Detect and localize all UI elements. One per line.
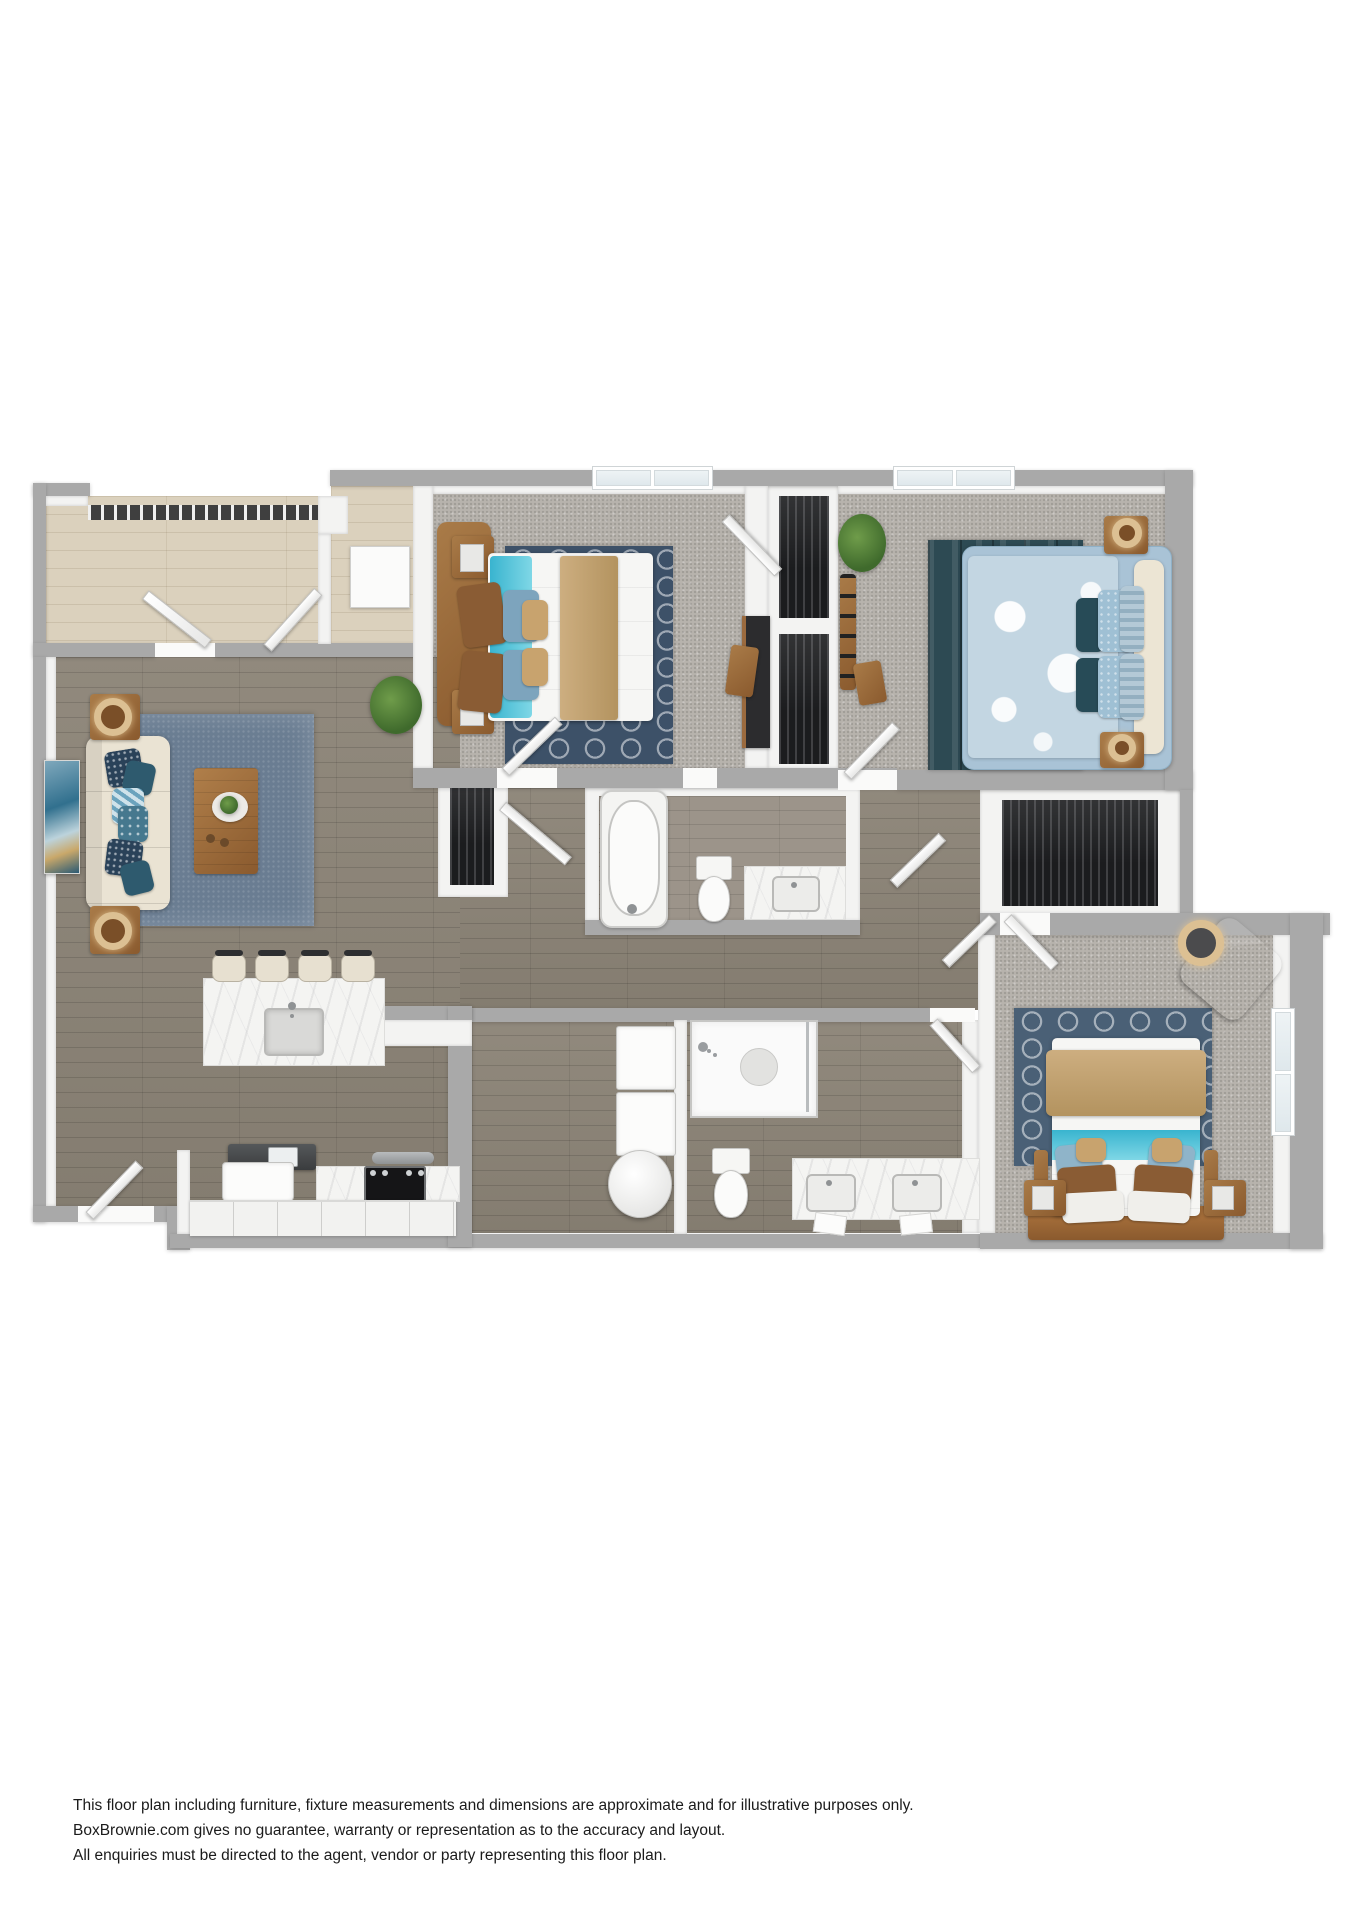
washer	[616, 1026, 676, 1090]
window-pane	[654, 470, 709, 486]
window-pane	[1275, 1012, 1291, 1071]
linen-closet-interior	[450, 783, 494, 885]
stove-knobs	[370, 1170, 376, 1176]
bedroom3-pillow-white	[1061, 1190, 1124, 1223]
dishwasher	[222, 1162, 294, 1204]
disclaimer-line-2: BoxBrownie.com gives no guarantee, warra…	[73, 1818, 1213, 1843]
bathroom2-faucet-left	[826, 1180, 832, 1186]
toilet1-bowl	[698, 876, 730, 922]
kitchen-stub-wall	[177, 1150, 190, 1234]
window-pane	[596, 470, 651, 486]
toilet2-bowl	[714, 1170, 748, 1218]
nightstand-decor	[1032, 1186, 1054, 1210]
bedroom2-bottom-wall	[897, 770, 1193, 790]
nook-left-wall	[318, 534, 331, 644]
top-exterior-wall	[330, 470, 1193, 486]
window-pane	[1275, 1074, 1291, 1133]
balcony-stub-inner-face	[46, 496, 88, 506]
nightstand-decor	[1212, 1186, 1234, 1210]
bathtub-faucet	[627, 904, 637, 914]
disclaimer: This floor plan including furniture, fix…	[73, 1793, 1213, 1868]
shower-glass	[806, 1022, 809, 1112]
dryer	[616, 1092, 676, 1156]
bathroom1-door-threshold	[683, 768, 717, 788]
bedroom3-tan-blanket	[1046, 1050, 1206, 1116]
shower-head	[698, 1042, 708, 1052]
sofa-pillow-lattice	[118, 806, 148, 842]
hand-towel	[899, 1212, 933, 1235]
balcony-railing	[88, 505, 318, 520]
bedroom1-closet-upper	[779, 496, 829, 618]
bedroom2-lamp-top	[1112, 518, 1142, 548]
bedroom2-closet-lower	[779, 634, 829, 764]
bar-stool	[298, 954, 332, 982]
window-pane	[956, 470, 1012, 486]
floor-plan	[0, 0, 1358, 1358]
bedroom3-pillow-tan	[1152, 1138, 1182, 1162]
bedroom2-duvet	[968, 556, 1118, 758]
table-lamp-bottom	[94, 912, 132, 950]
kitchen-bottom-wall	[170, 1234, 982, 1248]
coffee-cup	[206, 834, 215, 843]
bedroom1-bottom-wall	[413, 768, 897, 788]
bedroom3-window	[1271, 1008, 1295, 1136]
bar-stool	[341, 954, 375, 982]
bedroom2-pillow-ruffle	[1120, 654, 1144, 720]
bedroom3-pillow-white	[1127, 1190, 1190, 1223]
round-mirror	[1178, 920, 1224, 966]
bedroom1-pillow-brown	[457, 650, 507, 714]
coffee-table-plant	[220, 796, 238, 814]
range-hood	[372, 1152, 434, 1164]
island-faucet	[288, 1002, 296, 1010]
bathroom2-sink-right	[892, 1174, 942, 1212]
kitchen-cabinets	[190, 1200, 456, 1236]
bedroom1-pillow-tan	[522, 600, 548, 640]
bedroom2-lamp-bottom	[1108, 734, 1136, 762]
bedroom2-window	[893, 466, 1015, 490]
bedroom1-pillow-tan	[522, 648, 548, 686]
bedroom2-pillow-ruffle	[1120, 586, 1144, 652]
living-left-inner-face	[46, 657, 56, 1206]
walkin-closet-interior	[1002, 800, 1158, 906]
disclaimer-line-1: This floor plan including furniture, fix…	[73, 1793, 1213, 1818]
floor-plan-page: This floor plan including furniture, fix…	[0, 0, 1358, 1920]
bedroom2-plant	[838, 514, 886, 572]
bedroom3-pillow-tan	[1076, 1138, 1106, 1162]
bathtub-basin	[608, 800, 660, 916]
kitchen-bar-front	[378, 1020, 472, 1046]
left-exterior-wall	[33, 657, 46, 1222]
balcony-left-wall	[33, 483, 46, 657]
bar-stool	[212, 954, 246, 982]
bedroom1-tan-runner	[560, 556, 618, 720]
bedroom3-left-wall	[978, 935, 995, 1233]
table-lamp-top	[94, 698, 132, 736]
bedroom1-pillow-brown	[456, 581, 508, 649]
disclaimer-line-3: All enquiries must be directed to the ag…	[73, 1843, 1213, 1868]
balcony-bottom-wall-right	[215, 643, 433, 657]
bar-stool	[255, 954, 289, 982]
bathroom2-sink-left	[806, 1174, 856, 1212]
wall-artwork	[44, 760, 80, 874]
storage-chest	[350, 546, 410, 608]
shower-drain	[740, 1048, 778, 1086]
bathroom2-faucet-right	[912, 1180, 918, 1186]
water-heater	[608, 1150, 672, 1218]
nightstand-decor	[460, 544, 484, 572]
balcony-pillar	[318, 496, 348, 534]
island-sink	[264, 1008, 324, 1056]
bathroom1-faucet	[791, 882, 797, 888]
walkin-closet-right-wall	[1180, 790, 1193, 918]
balcony-bottom-wall-left	[33, 643, 155, 657]
window-pane	[897, 470, 953, 486]
hand-towel	[813, 1212, 847, 1236]
bedroom1-window	[592, 466, 713, 490]
bedroom1-left-wall	[413, 486, 433, 768]
bathroom1-sink	[772, 876, 820, 912]
hallway-corner-plant	[370, 676, 422, 734]
